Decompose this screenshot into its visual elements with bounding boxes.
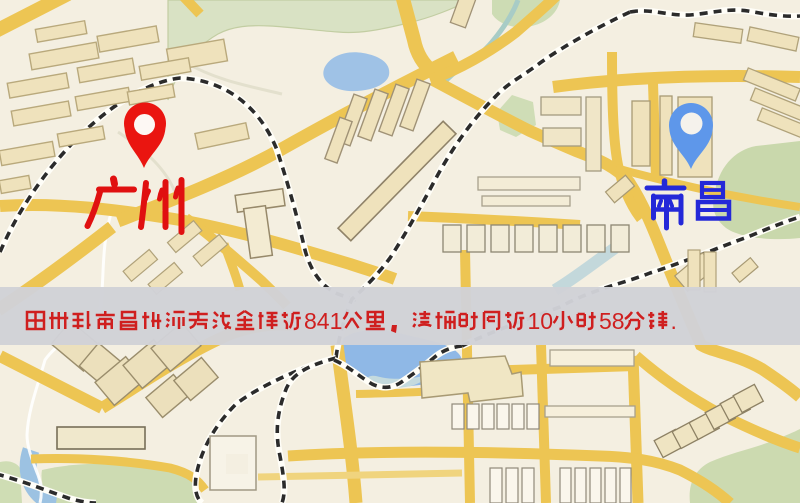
svg-text:58: 58 (599, 308, 625, 334)
svg-text:10: 10 (528, 308, 554, 334)
svg-text:841: 841 (304, 308, 342, 334)
svg-text:.: . (671, 308, 677, 334)
